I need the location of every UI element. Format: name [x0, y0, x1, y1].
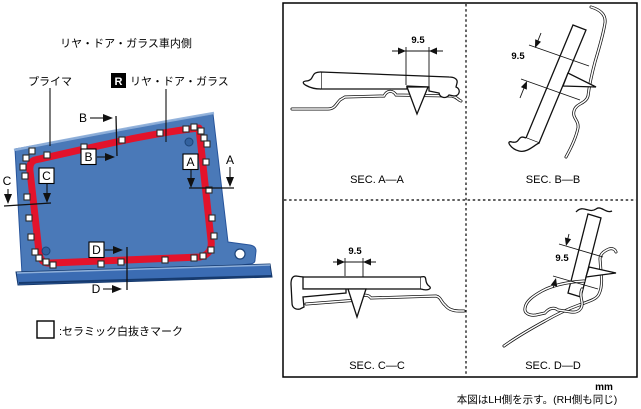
- legend-text: :セラミック白抜きマーク: [59, 324, 183, 338]
- r-badge-letter: R: [115, 76, 123, 88]
- label-b-top: B: [79, 111, 87, 125]
- section-b-label: SEC. B—B: [526, 174, 580, 186]
- primer-label: プライマ: [28, 75, 72, 88]
- section-c-label: SEC. C—C: [349, 360, 405, 372]
- dimension-d: 9.5: [555, 253, 569, 264]
- dimension-b: 9.5: [511, 51, 525, 62]
- service-manual-figure: B B A A C C D D リヤ・ドア・ガラス車内側 プライマ R リヤ・ド…: [0, 0, 641, 409]
- sections-frame: [283, 3, 637, 377]
- legend-square: [37, 321, 54, 338]
- label-a-left: A: [186, 155, 194, 169]
- label-d-top: D: [92, 243, 101, 257]
- glass-label: リヤ・ドア・ガラス: [130, 75, 229, 88]
- fastener-mark: [185, 138, 193, 146]
- label-a-right: A: [226, 153, 234, 167]
- mounting-hole: [235, 249, 245, 259]
- section-d-label: SEC. D—D: [525, 360, 581, 372]
- dimension-a: 9.5: [411, 35, 425, 46]
- label-c-left: C: [3, 174, 12, 188]
- diagram-canvas: B B A A C C D D リヤ・ドア・ガラス車内側 プライマ R リヤ・ド…: [0, 0, 641, 409]
- unit-label: mm: [595, 382, 613, 393]
- dimension-c: 9.5: [348, 246, 362, 257]
- figure-title: リヤ・ドア・ガラス車内側: [60, 36, 192, 50]
- fastener-mark: [42, 247, 50, 255]
- label-d-bottom: D: [92, 282, 101, 296]
- label-c-right: C: [42, 169, 51, 183]
- door-glass-illustration: [14, 113, 272, 285]
- label-b-bottom: B: [84, 150, 92, 164]
- section-a-label: SEC. A—A: [350, 174, 404, 186]
- footer-note: 本図はLH側を示す。(RH側も同じ): [457, 393, 618, 406]
